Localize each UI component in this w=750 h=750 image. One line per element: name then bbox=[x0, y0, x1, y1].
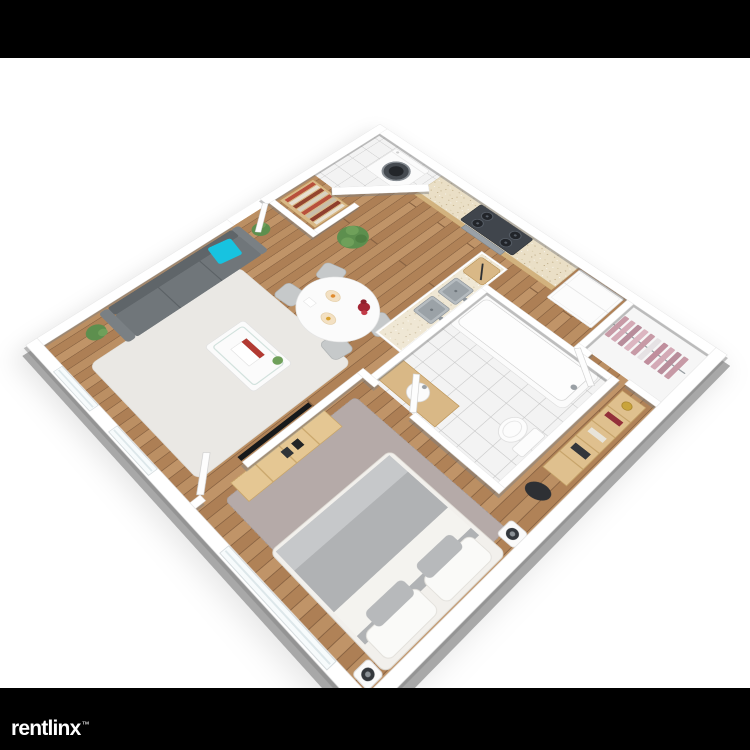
floor-plan-svg bbox=[26, 124, 727, 718]
rentlinx-logo-text: rentlinx bbox=[11, 717, 80, 740]
bottom-letterbox-bar bbox=[0, 688, 750, 750]
top-letterbox-bar bbox=[0, 0, 750, 58]
floor-plan-3d-container bbox=[26, 124, 727, 718]
rentlinx-logo: rentlinx™ bbox=[11, 717, 89, 741]
screenshot-stage: rentlinx™ bbox=[0, 0, 750, 750]
trademark-symbol: ™ bbox=[81, 720, 88, 729]
